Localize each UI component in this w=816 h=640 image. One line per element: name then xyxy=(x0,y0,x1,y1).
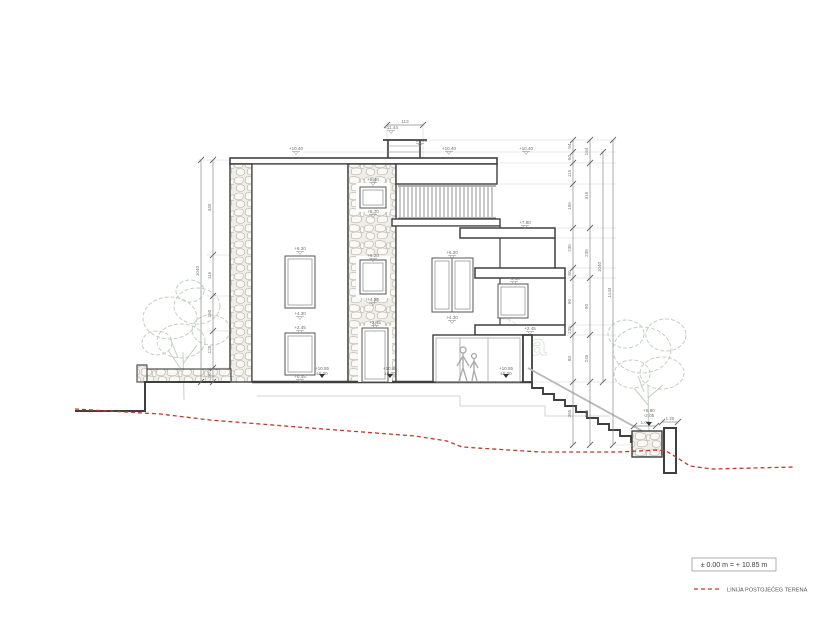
terrain-line xyxy=(75,409,795,469)
terrace-slab xyxy=(392,219,500,226)
wing-slab-2 xyxy=(475,268,565,278)
level-label: +2.45 xyxy=(369,320,381,325)
dim-label: 80 xyxy=(207,372,212,378)
dim-label: 235 xyxy=(584,249,589,257)
dim-label: 80 xyxy=(567,356,572,362)
datum-text: ± 0.00 m = + 10.85 m xyxy=(701,562,768,569)
level-label: +9.40 xyxy=(367,177,379,182)
left-retaining-profile xyxy=(75,382,230,411)
entry-side-wall xyxy=(523,335,532,382)
legend: ± 0.00 m = + 10.85 m LINIJA POSTOJEĆEG T… xyxy=(692,558,808,594)
window-left-lower xyxy=(285,333,315,375)
garden-wall xyxy=(145,369,231,382)
dim-label: 365 xyxy=(567,409,572,417)
dim-label: 1.25 xyxy=(666,416,675,421)
dim-label: 113 xyxy=(401,119,409,124)
terrain-legend-text: LINIJA POSTOJEĆEG TERENA xyxy=(727,587,808,594)
level-label: +6.20 xyxy=(294,246,306,251)
floor-marker-rel: -2.05 xyxy=(644,413,655,418)
dim-label: 90 xyxy=(567,299,572,305)
entry-canopy-slab xyxy=(475,325,565,335)
dim-label: 1040 xyxy=(195,265,200,276)
level-label: +11.44 xyxy=(384,125,398,130)
window-wing xyxy=(498,284,528,318)
dim-label: 54 xyxy=(567,143,572,149)
dim-label: 365 xyxy=(584,409,589,417)
dim-label: 1144 xyxy=(607,287,612,297)
terrace-railing xyxy=(398,186,496,218)
dim-label: 80 xyxy=(567,270,572,276)
dim-label: 150 xyxy=(207,309,212,317)
level-label: +2.45 xyxy=(524,326,536,331)
roof-slab xyxy=(230,158,497,164)
dim-label: 235 xyxy=(567,326,572,334)
dim-label: 125 xyxy=(207,345,212,353)
dim-label: 315 xyxy=(584,191,589,199)
drawing-page: burza nekretnina xyxy=(0,0,816,640)
wing-slab-1 xyxy=(460,228,555,238)
stone-pier-left xyxy=(230,164,252,382)
level-triangle-icon xyxy=(294,152,298,155)
level-label: +10.40 xyxy=(289,146,304,151)
level-label: +4.30 xyxy=(294,311,306,316)
level-label: +2.45 xyxy=(294,325,306,330)
dim-label: 155 xyxy=(567,202,572,210)
level-label: +4.30 xyxy=(367,297,379,302)
dim-label: 115 xyxy=(207,271,212,279)
dim-label: 235 xyxy=(567,244,572,252)
dim-label: 115 xyxy=(567,169,572,177)
window-pier-middle xyxy=(356,256,390,298)
dim-label: 164 xyxy=(584,147,589,155)
dim-label: 50 xyxy=(567,155,572,161)
level-label: +7.80 xyxy=(519,220,531,225)
retaining-wall-2 xyxy=(664,428,676,473)
window-left-upper xyxy=(285,256,315,308)
retaining-wall-1 xyxy=(632,431,662,457)
level-label: +0.45 xyxy=(294,374,306,379)
foundation-line xyxy=(257,396,610,416)
site-left xyxy=(75,365,231,411)
level-label: +10.40 xyxy=(442,146,457,151)
level-label: +8.70 xyxy=(367,209,379,214)
entry-glazing xyxy=(433,335,532,382)
dim-label: 245 xyxy=(584,354,589,362)
level-label: +4.30 xyxy=(446,315,458,320)
window-pier-top xyxy=(356,183,390,212)
fascia-beam xyxy=(396,164,497,184)
level-label: +6.20 xyxy=(367,253,379,258)
level-label: +6.20 xyxy=(446,250,458,255)
level-triangle-icon xyxy=(389,131,393,134)
stair-stringer xyxy=(528,368,644,432)
garden-wall-post xyxy=(137,365,147,382)
elevation-drawing: burza nekretnina xyxy=(0,0,816,640)
level-label: +10.40 xyxy=(519,146,534,151)
dim-label: 90 xyxy=(584,304,589,310)
window-double-upper xyxy=(432,258,473,312)
dim-label: 1040 xyxy=(597,261,602,272)
level-label: +5.10 xyxy=(508,276,520,281)
level-label: +10.90 xyxy=(413,138,428,143)
dim-label: 440 xyxy=(207,203,212,211)
